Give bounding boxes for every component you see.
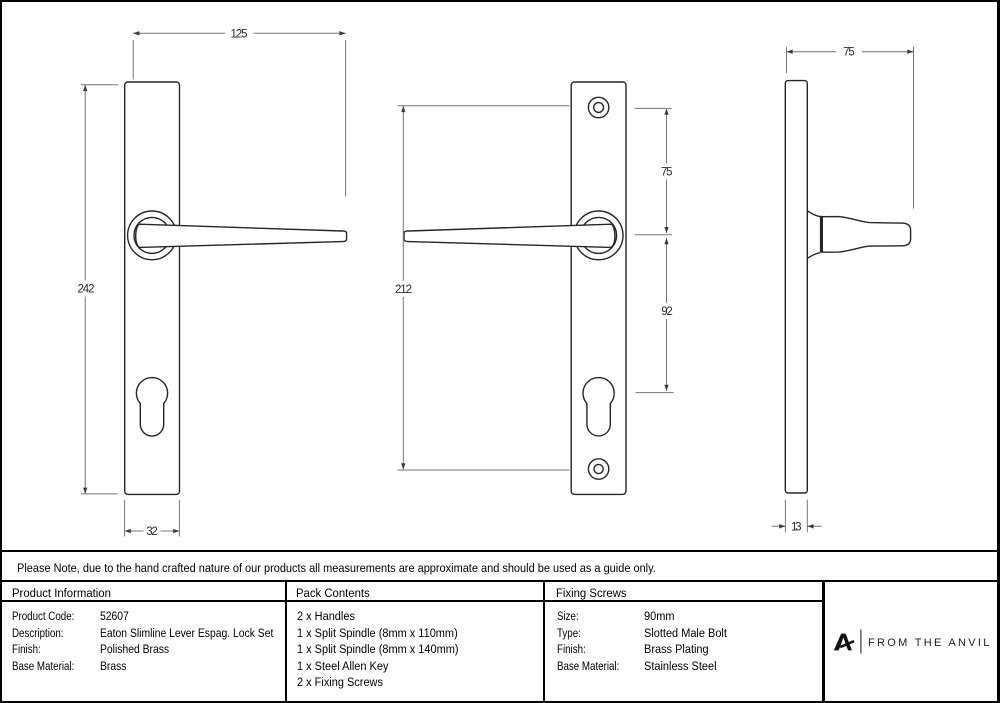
svg-text:FROM THE ANVIL: FROM THE ANVIL xyxy=(868,637,992,649)
svg-text:212: 212 xyxy=(395,284,412,296)
svg-text:13: 13 xyxy=(791,521,802,533)
svg-text:75: 75 xyxy=(843,47,855,59)
svg-text:125: 125 xyxy=(231,28,248,40)
svg-text:75: 75 xyxy=(661,167,673,179)
svg-text:32: 32 xyxy=(146,526,158,538)
svg-text:92: 92 xyxy=(661,306,673,318)
svg-text:242: 242 xyxy=(78,284,95,296)
